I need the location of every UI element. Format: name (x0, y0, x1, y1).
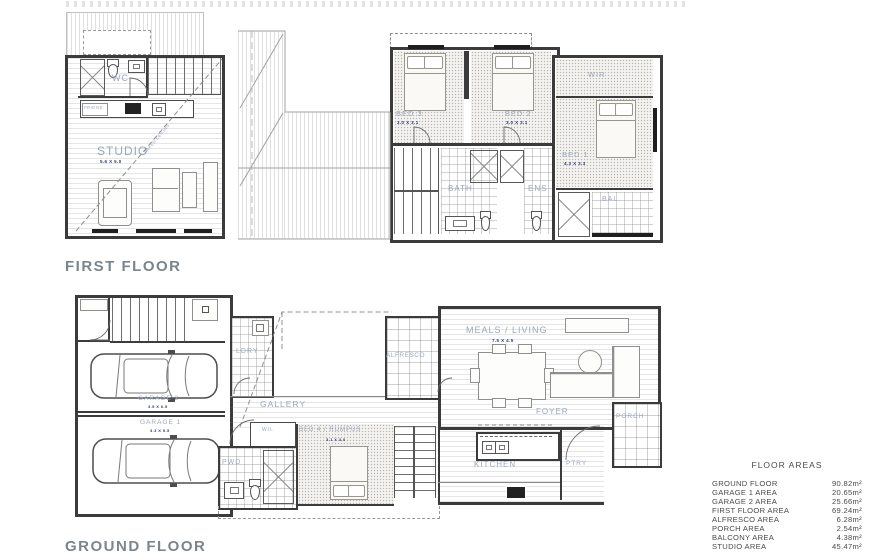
bal-wall (556, 188, 653, 190)
floor-area-value: 25.66m² (832, 497, 862, 506)
pwd-shower (263, 450, 294, 504)
garage2-top-wall (110, 341, 225, 343)
cropped-edge-text (66, 1, 686, 7)
studio-stairs (148, 58, 221, 95)
ff-mid-wall (392, 143, 552, 146)
entry-cupboard (80, 299, 108, 311)
bal-label: BAL. (602, 196, 621, 203)
pwd-toilet-icon (248, 479, 260, 498)
floor-area-row: GARAGE 2 AREA 25.66m² (712, 497, 862, 506)
pantry-wall (560, 428, 562, 500)
porch-label: PORCH (616, 413, 644, 420)
garage1-car-icon (90, 434, 222, 488)
bath-vanity (445, 216, 475, 231)
floor-area-value: 6.28m² (837, 515, 862, 524)
bath-toilet-icon (479, 211, 490, 229)
studio-window-3 (184, 229, 212, 233)
floor-area-label: BALCONY AREA (712, 533, 774, 542)
pwd-vanity (224, 482, 244, 499)
floor-area-label: FIRST FLOOR AREA (712, 506, 789, 515)
wir-label: WIR (588, 70, 606, 79)
window-seat (565, 318, 629, 333)
garage2-label: GARAGE 2 (138, 395, 179, 402)
bath-shower (470, 150, 498, 183)
garage-divider-1 (77, 411, 225, 413)
studio-shower (80, 59, 105, 96)
floor-area-row: FIRST FLOOR AREA 69.24m² (712, 506, 862, 515)
floor-area-value: 4.38m² (837, 533, 862, 542)
floor-area-value: 2.54m² (837, 524, 862, 533)
wc-label: WC (112, 73, 129, 83)
alfresco-label: ALFRESCO (386, 352, 425, 359)
wc-wall-bottom (78, 96, 148, 98)
ground-stairs (112, 298, 188, 342)
kitchen-sink-1 (482, 441, 496, 454)
kitchen-label: KITCHEN (474, 460, 516, 469)
bath-label: BATH (448, 184, 473, 193)
studio-sink (152, 103, 166, 116)
bed2-bed-icon (492, 53, 534, 111)
floor-area-row: ALFRESCO AREA 6.28m² (712, 515, 862, 524)
entry-room-wall-r (108, 297, 110, 342)
floor-area-label: GROUND FLOOR (712, 479, 778, 488)
ff-window-1 (408, 45, 444, 49)
garage-divider-2 (77, 415, 225, 417)
wc-wall-right (146, 57, 148, 98)
ldry-label: LDRY (236, 348, 259, 355)
dining-chair-1 (492, 344, 506, 354)
bed3-label: BED 3 (396, 109, 423, 118)
laundry-tub-inner (256, 324, 264, 332)
linen-closet (500, 150, 524, 183)
gallery-label: GALLERY (260, 399, 306, 409)
sofa-chaise (612, 346, 640, 398)
dining-table (478, 352, 546, 400)
studio-label: STUDIO (97, 144, 148, 158)
ff-stairs-rail (394, 190, 438, 192)
roof-dashed-outline (83, 30, 151, 55)
fridge-label: FRIDGE (84, 105, 103, 110)
ens-label: ENS (528, 184, 547, 193)
bed2-dim: 3.0 X 3.1 (506, 120, 528, 125)
garage2-dim: 3.5 X 6.5 (148, 404, 168, 409)
floor-area-label: GARAGE 2 AREA (712, 497, 777, 506)
island-dashed-line (480, 436, 552, 438)
meals-dim: 7.5 X 4.5 (492, 338, 514, 343)
kitchen-bench-line (438, 482, 560, 483)
ens-toilet-icon (530, 211, 541, 229)
side-table-round (578, 350, 602, 374)
kitchen-sink-2 (495, 441, 509, 454)
bed-divider-wall (464, 51, 469, 99)
floor-area-row: STUDIO AREA 45.47m² (712, 542, 862, 551)
floor-area-row: PORCH AREA 2.54m² (712, 524, 862, 533)
wir-wall (556, 96, 653, 98)
studio-cabinet-1 (152, 168, 180, 212)
porch-room (612, 402, 662, 468)
foyer-label: FOYER (536, 407, 569, 416)
ground-stairs-2 (394, 426, 436, 498)
floor-area-label: GARAGE 1 AREA (712, 488, 777, 497)
floor-area-label: ALFRESCO AREA (712, 515, 779, 524)
ptry-label: PTRY (566, 460, 587, 467)
bed3-dim: 3.0 X 3.1 (397, 120, 419, 125)
studio-dim: 5.6 X 5.0 (100, 159, 122, 164)
ground-dashed-outline (218, 506, 440, 519)
floor-area-value: 90.82m² (832, 479, 862, 488)
bed3-bed-icon (404, 53, 446, 111)
floor-area-row: GARAGE 1 AREA 20.65m² (712, 488, 862, 497)
bed1-bed-icon (596, 100, 636, 158)
landing-dot (202, 306, 209, 313)
kitchen-cooktop (506, 486, 526, 499)
studio-window-1 (92, 229, 118, 233)
ground-stairs-2-rail (413, 426, 415, 498)
floor-areas-title: FLOOR AREAS (712, 460, 862, 470)
ground-floor-title: GROUND FLOOR (65, 538, 206, 555)
studio-cooktop (124, 102, 142, 115)
wil-label: WIL (262, 427, 274, 433)
roof-plane-mid-upper (238, 31, 284, 239)
dining-chair-3 (492, 398, 506, 408)
ff-window-3 (653, 108, 657, 152)
bed4-dim: 3.1 X 3.0 (326, 437, 346, 442)
floor-area-value: 45.47m² (832, 542, 862, 551)
bed1-label: BED 1 (562, 150, 589, 159)
studio-window-2 (136, 229, 176, 233)
cabinet-divider (152, 188, 178, 189)
floor-area-label: STUDIO AREA (712, 542, 766, 551)
bed2-label: BED 2 (505, 109, 532, 118)
dining-chair-4 (518, 398, 532, 408)
roof-plane-mid-lower (284, 112, 390, 239)
entry-room-wall-b (78, 340, 110, 342)
bed4-bed-icon (330, 446, 368, 500)
floor-areas-panel: FLOOR AREAS GROUND FLOOR 90.82m² GARAGE … (712, 460, 862, 551)
bal-void (558, 192, 590, 237)
studio-basin (128, 60, 145, 73)
floor-area-row: GROUND FLOOR 90.82m² (712, 479, 862, 488)
meals-label: MEALS / LIVING (466, 325, 548, 335)
first-floor-title: FIRST FLOOR (65, 258, 182, 275)
floor-area-row: BALCONY AREA 4.38m² (712, 533, 862, 542)
garage1-dim: 3.3 X 5.5 (150, 428, 170, 433)
pwd-label: PWD (222, 459, 241, 466)
bed4-label: BED 4 / RUMPUS (299, 427, 361, 433)
bed1-dim: 4.3 X 3.3 (564, 161, 586, 166)
studio-cabinet-2 (182, 172, 197, 208)
bal-rail (592, 233, 653, 237)
studio-armchair-seat (103, 188, 127, 218)
floor-area-value: 20.65m² (832, 488, 862, 497)
garage1-label: GARAGE 1 (140, 419, 181, 426)
dining-chair-5 (470, 368, 480, 383)
floor-area-value: 69.24m² (832, 506, 862, 515)
floor-plan-drawing: WC FRIDGE STUDIO 5.6 X 5.0 RAKED CEILING… (0, 0, 880, 560)
dining-chair-2 (518, 344, 532, 354)
ff-window-2 (494, 45, 530, 49)
floor-area-label: PORCH AREA (712, 524, 765, 533)
studio-cabinet-3 (203, 162, 218, 212)
